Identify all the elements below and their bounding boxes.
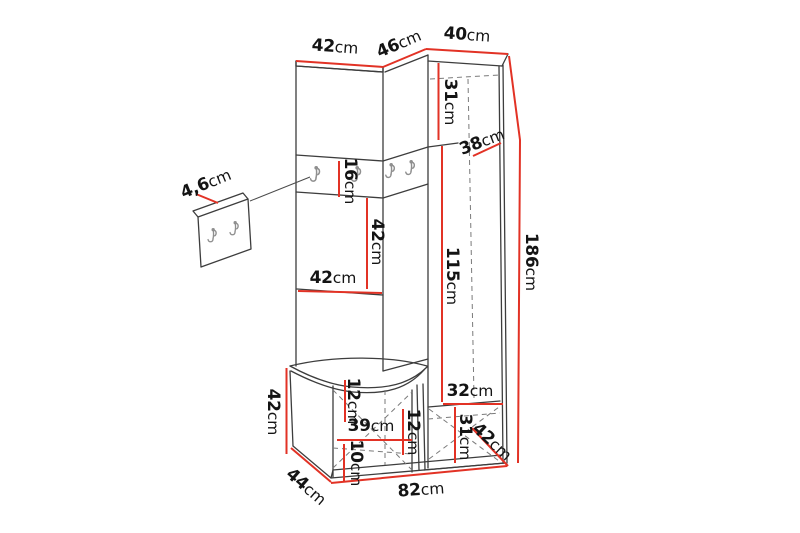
- dim-label-right-bottom-shelf-width: 32cm: [447, 381, 494, 401]
- dim-label-right-top-section-height: 31cm: [440, 79, 460, 126]
- dim-label-total-height: 186cm: [521, 233, 541, 291]
- dim-label-bench-opening-height: 12cm: [403, 409, 423, 456]
- dim-label-top-middle-width: 46cm: [374, 26, 425, 63]
- wall-hook-icon: [311, 167, 320, 181]
- diagram-canvas: 42cm 46cm 40cm 186cm 31cm 38cm 115cm 16c…: [0, 0, 800, 533]
- wall-hook-icon: [230, 222, 238, 235]
- dim-label-right-bottom-depth: 42cm: [468, 419, 516, 465]
- dim-label-hook-strip-height: 16cm: [340, 158, 360, 205]
- dim-label-right-middle-section-height: 115cm: [442, 247, 462, 305]
- dim-label-left-section-width: 42cm: [310, 268, 357, 288]
- dim-label-left-middle-section-height: 42cm: [367, 219, 387, 266]
- dim-label-bench-height: 42cm: [263, 389, 283, 436]
- dim-label-total-width: 82cm: [397, 478, 445, 501]
- dim-line-total-height: [509, 56, 520, 463]
- furniture-dimension-diagram: 42cm 46cm 40cm 186cm 31cm 38cm 115cm 16c…: [0, 0, 800, 533]
- cabinet-hook-strip: [311, 161, 415, 181]
- dim-line-left-section-width: [298, 291, 382, 293]
- dim-label-top-left-width: 42cm: [311, 35, 359, 58]
- wall-hook-icon: [406, 161, 415, 175]
- dim-line-top-left-width: [296, 61, 383, 67]
- dim-label-top-right-width: 40cm: [443, 23, 491, 46]
- dim-line-top-right-width: [426, 49, 508, 54]
- panel-pointer-line: [250, 177, 310, 201]
- dim-label-bench-opening-width: 39cm: [348, 416, 395, 436]
- dim-label-bench-bottom-section-height: 10cm: [346, 440, 366, 487]
- wall-hook-icon: [208, 229, 216, 242]
- wall-hook-icon: [386, 164, 395, 178]
- dimension-labels: 42cm 46cm 40cm 186cm 31cm 38cm 115cm 16c…: [178, 23, 541, 509]
